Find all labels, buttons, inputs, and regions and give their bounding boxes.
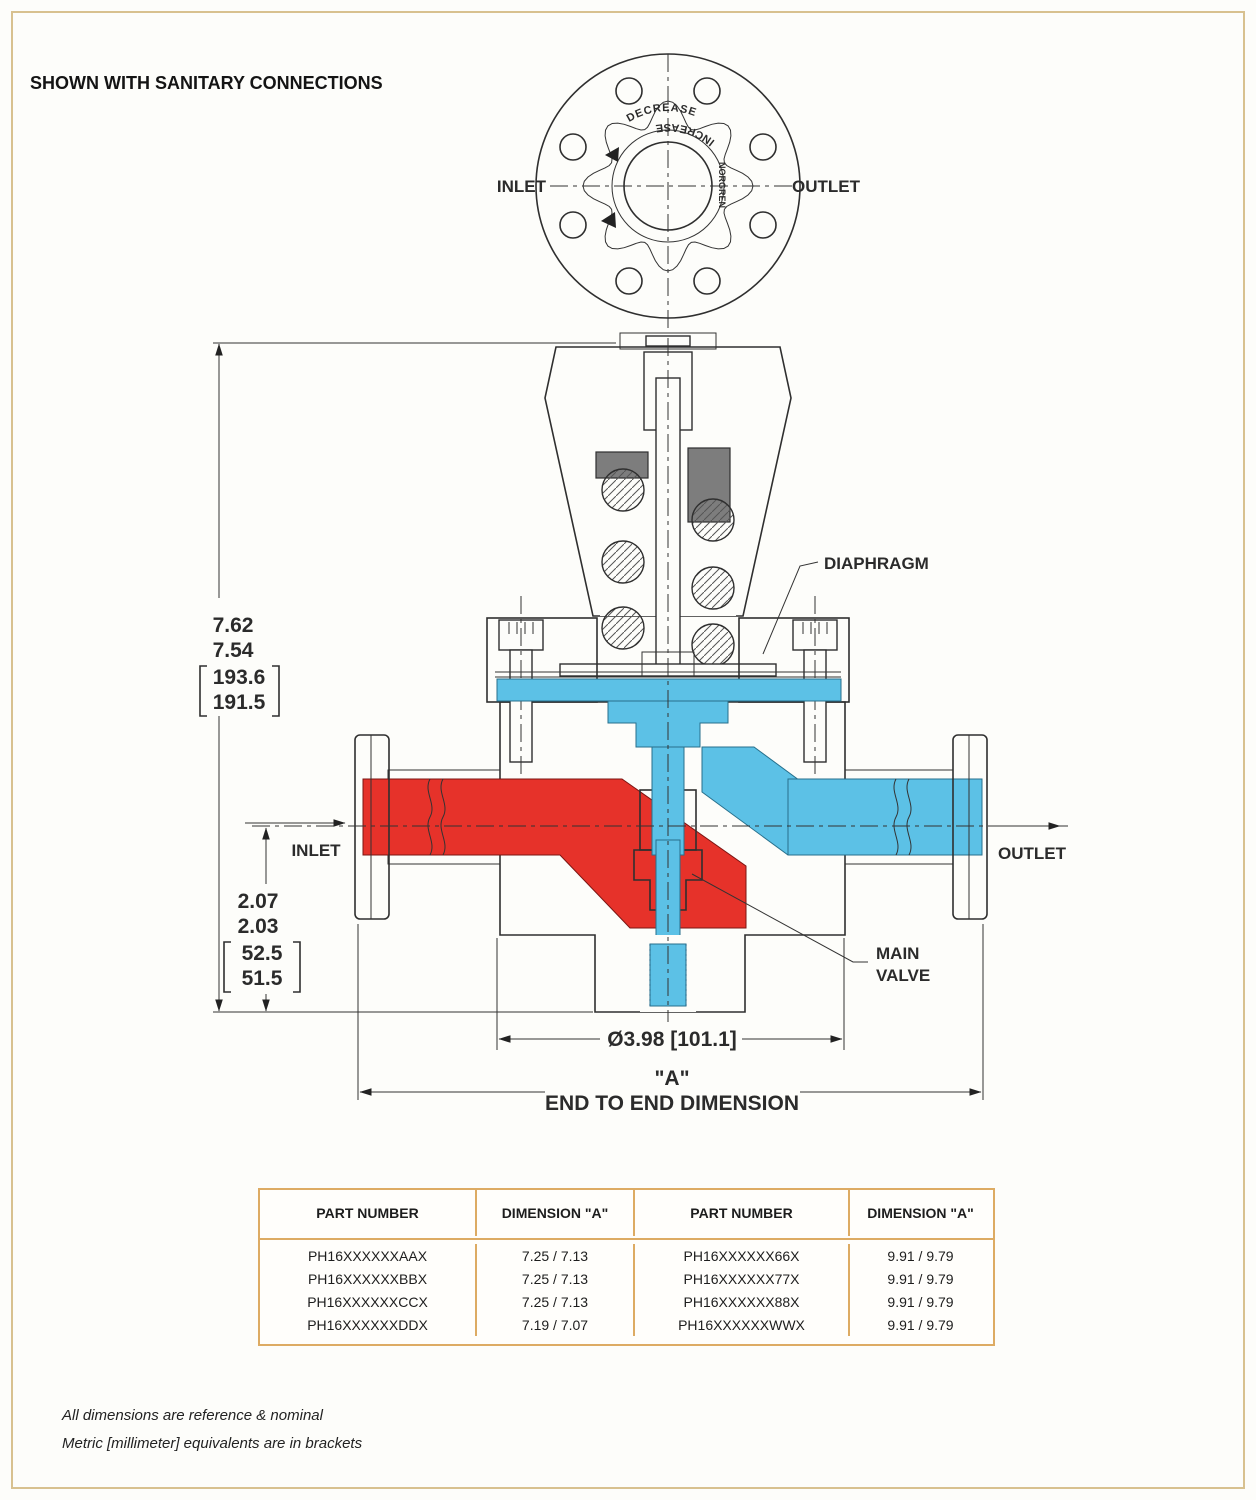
dim-height-mm-max: 193.6 [213, 666, 266, 689]
table-cell: 7.19 / 7.07 [475, 1313, 633, 1336]
top-inlet-label: INLET [497, 177, 547, 196]
diaphragm-label: DIAPHRAGM [824, 554, 929, 573]
dim-body-diameter-text: Ø3.98 [101.1] [607, 1028, 737, 1051]
top-view: DECREASE INCREASE NORGREN INLET OUTLET [497, 54, 861, 332]
dim-height-in-min: 7.54 [213, 639, 254, 662]
table-cell: PH16XXXXXXAAX [260, 1244, 475, 1267]
table-header-cell: DIMENSION "A" [848, 1190, 991, 1236]
table-cell: PH16XXXXXX77X [633, 1267, 848, 1290]
increase-label: INCREASE [654, 121, 717, 148]
section-inlet-label: INLET [291, 841, 341, 860]
dim-cl-mm-min: 51.5 [242, 967, 283, 990]
dim-cl-in-max: 2.07 [238, 890, 279, 913]
table-header-cell: PART NUMBER [633, 1190, 848, 1236]
table-cell: PH16XXXXXXDDX [260, 1313, 475, 1336]
table-cell: 9.91 / 9.79 [848, 1267, 991, 1290]
footnotes: All dimensions are reference & nominal M… [62, 1402, 362, 1458]
brand-label: NORGREN [717, 162, 727, 208]
valve-drawing: DECREASE INCREASE NORGREN INLET OUTLET [0, 0, 1256, 1165]
table-header-cell: PART NUMBER [260, 1190, 475, 1236]
table-cell: 7.25 / 7.13 [475, 1290, 633, 1313]
footnote-line: All dimensions are reference & nominal [62, 1402, 362, 1430]
table-row: PH16XXXXXXAAX 7.25 / 7.13 PH16XXXXXX66X … [260, 1244, 993, 1267]
section-view: INLET OUTLET DIAPHRAGM MAIN VALVE [245, 333, 1068, 1022]
drawing-page: SHOWN WITH SANITARY CONNECTIONS [0, 0, 1256, 1500]
main-valve-label-2: VALVE [876, 966, 930, 985]
footnote-line: Metric [millimeter] equivalents are in b… [62, 1430, 362, 1458]
dim-a-ref: "A" [654, 1067, 689, 1090]
increase-arrow-icon [601, 212, 616, 228]
table-row: PH16XXXXXXCCX 7.25 / 7.13 PH16XXXXXX88X … [260, 1290, 993, 1313]
table-row: PH16XXXXXXBBX 7.25 / 7.13 PH16XXXXXX77X … [260, 1267, 993, 1290]
table-header-cell: DIMENSION "A" [475, 1190, 633, 1236]
dim-height-in-max: 7.62 [213, 614, 254, 637]
dim-cl-in-min: 2.03 [238, 915, 279, 938]
table-cell: PH16XXXXXXBBX [260, 1267, 475, 1290]
table-header-row: PART NUMBER DIMENSION "A" PART NUMBER DI… [260, 1190, 993, 1240]
dim-height-mm-min: 191.5 [213, 691, 266, 714]
table-cell: 7.25 / 7.13 [475, 1244, 633, 1267]
table-cell: 9.91 / 9.79 [848, 1313, 991, 1336]
dim-cl-mm-max: 52.5 [242, 942, 283, 965]
table-cell: PH16XXXXXXWWX [633, 1313, 848, 1336]
table-cell: 9.91 / 9.79 [848, 1290, 991, 1313]
table-cell: 9.91 / 9.79 [848, 1244, 991, 1267]
table-cell: PH16XXXXXX88X [633, 1290, 848, 1313]
table-cell: PH16XXXXXXCCX [260, 1290, 475, 1313]
table-cell: PH16XXXXXX66X [633, 1244, 848, 1267]
part-number-table: PART NUMBER DIMENSION "A" PART NUMBER DI… [258, 1188, 995, 1346]
dim-a-caption: END TO END DIMENSION [545, 1092, 799, 1115]
diaphragm-callout: DIAPHRAGM [763, 554, 929, 654]
table-cell: 7.25 / 7.13 [475, 1267, 633, 1290]
table-row: PH16XXXXXXDDX 7.19 / 7.07 PH16XXXXXXWWX … [260, 1313, 993, 1336]
table-body: PH16XXXXXXAAX 7.25 / 7.13 PH16XXXXXX66X … [260, 1240, 993, 1344]
section-outlet-label: OUTLET [998, 844, 1067, 863]
inlet-flow-red [363, 779, 746, 928]
dimension-centerline-height: 2.07 2.03 52.5 51.5 [224, 828, 300, 1011]
top-outlet-label: OUTLET [792, 177, 861, 196]
main-valve-label-1: MAIN [876, 944, 919, 963]
